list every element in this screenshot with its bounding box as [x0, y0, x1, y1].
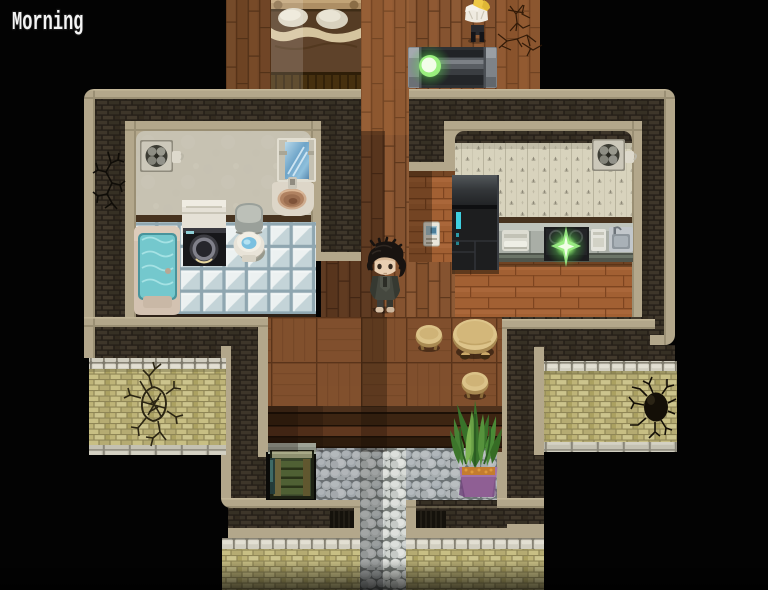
svg-text:Morning: Morning — [12, 8, 84, 38]
